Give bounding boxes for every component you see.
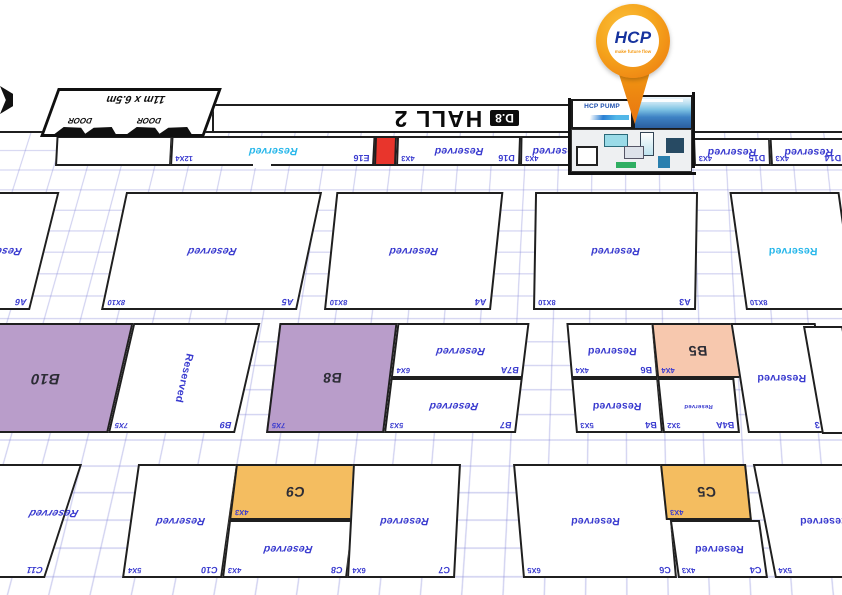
booth-id: D16 [499,153,516,163]
booth-id: C6 [659,565,671,575]
booth-id: C4 [750,565,763,575]
booth-id: A3 [680,297,692,307]
booth-c6[interactable]: ReservedC66X5 [513,464,677,578]
booth-b8[interactable]: B87X5 [266,323,398,433]
booth-status: Reserved [684,403,713,409]
booth-size-label: 7X5 [114,421,129,430]
booth-status: Reserved [592,400,642,412]
booth-c8[interactable]: ReservedC84X3 [222,520,354,578]
booth-id: B4A [716,420,735,430]
booth-id: B9 [219,420,233,430]
booth-id: C7 [439,565,451,575]
booth-size-label: 4X3 [525,154,539,163]
booth-size-label: 4X3 [234,508,248,517]
booth-status: Reserved [379,515,429,527]
booth-b4a[interactable]: ReservedB4A3X2 [657,378,740,433]
booth-id: C8 [331,565,344,575]
booth-size-label: 4X3 [699,154,713,163]
booth-size-label: 4X4 [661,366,675,375]
booth-id: A6 [14,297,28,307]
booth-size-label: 8X10 [107,298,126,307]
booth-size-label: 4X3 [775,154,789,163]
booth-size-label: 4X3 [670,508,684,517]
booth-id: B8 [321,370,342,386]
booth-id: B7 [500,420,513,430]
booth-status: Reserved [434,145,483,157]
strip-entrance-gap [253,162,271,168]
booth-a2: Reserved8X10 [729,192,842,310]
booth-status: Reserved [248,145,298,157]
hcp-tagline: make future flow [615,49,652,54]
booth-size-label: 4X4 [575,366,589,375]
booth-c9[interactable]: C94X3 [229,464,361,520]
booth-size-label: 6X5 [527,566,541,575]
door-swing-icon [126,127,195,135]
booth-a3[interactable]: ReservedA38X10 [533,192,698,310]
booth-size-label: 7X5 [271,421,285,430]
booth-status: Reserved [186,245,237,257]
pin-head-icon: HCP make future flow [596,4,670,78]
booth-size-label: 4X3 [681,566,696,575]
booth-c7[interactable]: ReservedC76X4 [347,464,461,578]
booth-s1 [55,136,173,166]
hall-name-label: HALL 2 [393,105,482,132]
booth-size-label: 5X4 [778,566,793,575]
booth-id: B6 [641,365,653,375]
booth-e16[interactable]: ReservedE1612X4 [170,136,376,166]
booth-status: Reserved [435,345,485,357]
booth-id: B5 [688,343,709,359]
booth-status: Reserved [756,372,807,384]
booth-b9[interactable]: ReservedB97X5 [108,323,260,433]
booth-status: Reserved [155,515,206,527]
booth-id: D14 [825,153,842,163]
booth-status: Reserved [0,245,23,257]
booth-size-label: 4X3 [227,566,241,575]
booth-size-label: 4X3 [401,154,415,163]
booth-status: Reserved [428,400,478,412]
booth-size-label: 5X3 [580,421,594,430]
booth-size-label: 3X2 [667,421,681,430]
booth-red [374,136,397,166]
hall-title: D.8 HALL 2 [352,103,560,134]
booth-id: B4 [645,420,657,430]
booth-status: Reserved [570,515,620,527]
booth-status: Reserved [263,543,313,555]
booth-b6[interactable]: ReservedB64X4 [566,323,658,378]
door-swing-icon [53,127,119,135]
booth-id: B7A [500,365,519,375]
booth-size-label: 5X4 [127,566,142,575]
booth-id: C5 [696,484,717,500]
booth-b7a[interactable]: ReservedB7A6X4 [391,323,530,378]
booth-b5[interactable]: B54X4 [651,323,744,378]
booth-id: C10 [201,565,219,575]
booth-d14[interactable]: ReservedD144X3 [770,138,842,166]
door-room-size-label: 11m x 6.5m [55,93,217,105]
location-pin[interactable]: HCP make future flow [596,4,672,150]
pin-logo-circle: HCP make future flow [607,15,659,67]
booth-status: Reserved [591,245,640,257]
booth-d16[interactable]: ReservedD164X3 [396,136,521,166]
booth-id: E16 [353,153,370,163]
booth-status: Reserved [587,345,637,357]
booth-size-label: 5X3 [389,421,403,430]
door-room: 11m x 6.5m DOOR DOOR [40,88,222,137]
door-label-right: DOOR [136,116,163,125]
booth-b7[interactable]: ReservedB75X3 [384,378,523,433]
booth-status: Reserved [173,354,196,403]
booth-size-label: 6X4 [396,366,410,375]
hcp-logo: HCP [615,28,652,48]
wall-stub [0,86,13,114]
exhibition-floor-plan: 11m x 6.5m DOOR DOOR D.8 HALL 2 Reserved… [0,0,842,595]
green-sign [616,162,636,168]
booth-size-label: 6X4 [352,566,366,575]
booth-c10[interactable]: ReservedC105X4 [122,464,238,578]
booth-a5[interactable]: ReservedA58X10 [101,192,322,310]
booth-status: Reserved [389,245,439,257]
booth-id: A4 [475,297,488,307]
booth-status: Reserved [798,515,842,527]
booth-number-badge: D.8 [490,111,519,127]
booth-c5[interactable]: C54X3 [660,464,752,520]
booth-size-label: 12X4 [175,154,193,163]
door-label-left: DOOR [66,116,93,125]
booth-size-label: 8X10 [749,298,768,307]
booth-id: B10 [29,370,62,387]
booth-base-line [568,172,696,175]
booth-d15[interactable]: ReservedD154X3 [693,138,771,166]
booth-id: D15 [749,153,766,163]
booth-a4[interactable]: ReservedA48X10 [324,192,503,310]
pump-unit [658,156,670,168]
booth-c4[interactable]: ReservedC44X3 [670,520,768,578]
booth-b4[interactable]: ReservedB45X3 [571,378,663,433]
booth-status: Reserved [27,507,80,519]
reception-desk [576,146,598,166]
booth-id: C11 [25,565,44,575]
booth-status: Reserved [767,245,818,257]
booth-status: Reserved [694,543,745,555]
booth-id: C9 [285,484,306,500]
booth-size-label: 8X10 [538,298,556,307]
booth-id: A5 [281,297,295,307]
booth-size-label: 8X10 [329,298,347,307]
